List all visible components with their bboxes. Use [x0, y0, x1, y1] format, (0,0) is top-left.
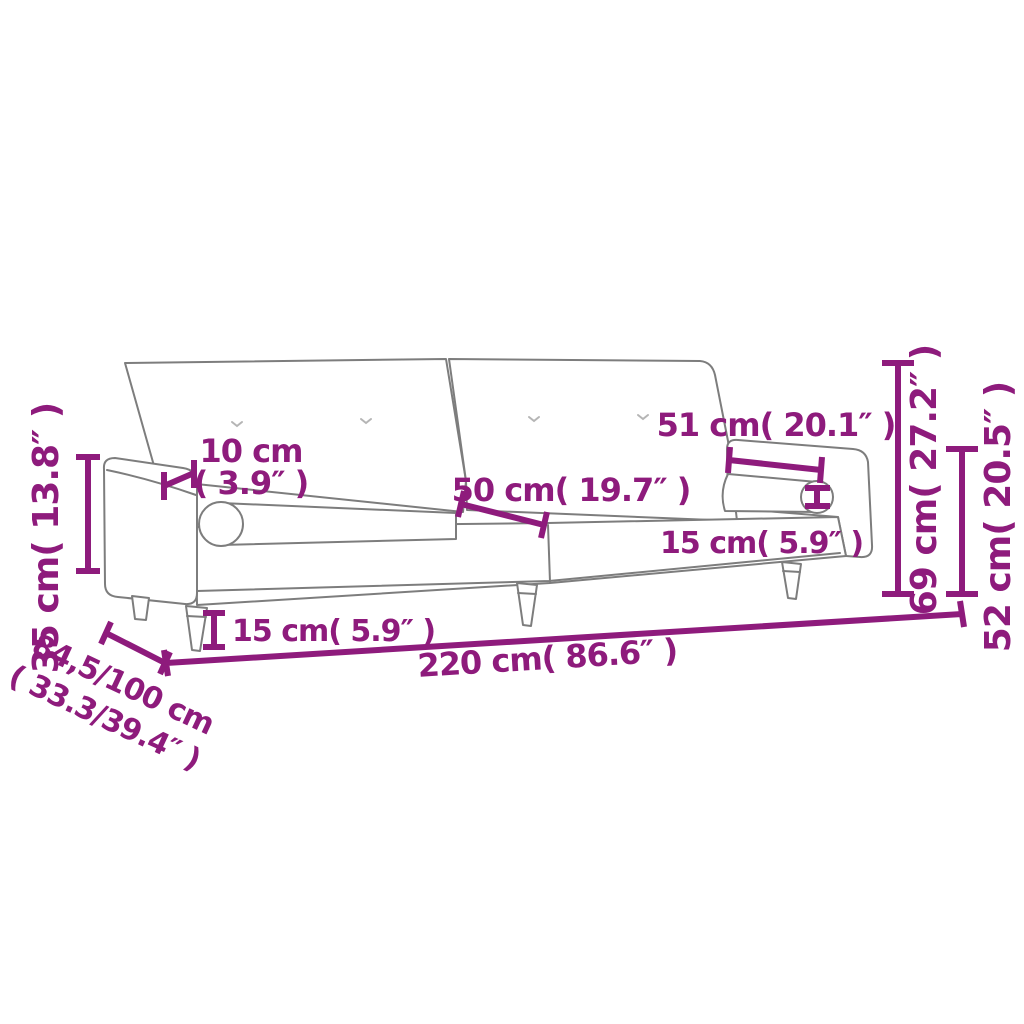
dimension-label: 69 cm( 27.2″ ) — [904, 345, 945, 615]
dimension-line — [76, 457, 100, 571]
dimension-total-height: 69 cm( 27.2″ ) — [882, 345, 945, 615]
dimension-depth: 84,5/100 cm ( 33.3/39.4″ ) — [3, 622, 221, 778]
dimension-label: 50 cm( 19.7″ ) — [452, 471, 691, 509]
dimension-leg-height: 15 cm( 5.9″ ) — [203, 613, 435, 649]
leg-front-middle — [517, 583, 537, 626]
left-bolster-body — [221, 503, 456, 545]
dimension-line — [946, 449, 978, 594]
dimension-diagram: 35 cm( 13.8″ ) 10 cm ( 3.9″ ) 50 cm( 19.… — [0, 0, 1024, 1024]
dimension-label: 15 cm( 5.9″ ) — [232, 614, 435, 649]
dimension-label-inches: ( 3.9″ ) — [194, 464, 309, 502]
dimension-label: 220 cm( 86.6″ ) — [416, 631, 678, 685]
dimension-label: 52 cm( 20.5″ ) — [978, 382, 1019, 652]
leg-back-left — [132, 596, 149, 620]
sofa-dimension-svg: 35 cm( 13.8″ ) 10 cm ( 3.9″ ) 50 cm( 19.… — [0, 0, 1024, 1024]
dimension-label: 51 cm( 20.1″ ) — [657, 406, 896, 444]
leg-front-right-seam — [783, 571, 800, 572]
left-bolster-end — [199, 502, 243, 546]
leg-front-left-seam — [187, 616, 206, 617]
dimension-label: 15 cm( 5.9″ ) — [660, 526, 863, 561]
leg-front-middle-seam — [518, 593, 536, 594]
dimension-armrest-height: 35 cm( 13.8″ ) — [26, 403, 100, 673]
leg-front-right — [782, 562, 801, 599]
